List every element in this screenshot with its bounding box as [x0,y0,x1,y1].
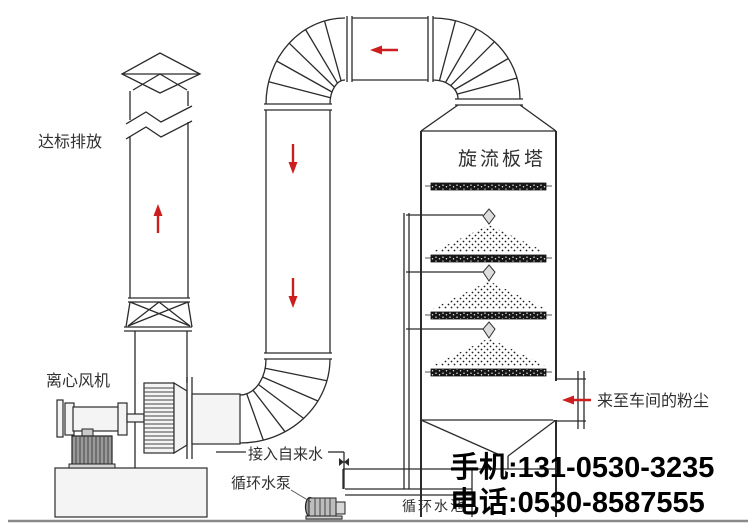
valve-icon [339,458,344,466]
process-flow-diagram: 达标排放 离心风机 旋流板塔 来至车间的粉尘 接入自来水 循环水泵 循环水池 手… [0,0,756,529]
spray-level [406,209,546,252]
spray-level [406,265,546,309]
downcomer-duct [264,104,332,359]
spray-cone [432,225,546,252]
fan-foundation-block [55,468,207,517]
tap-water-label: 接入自来水 [248,446,323,463]
stack-reducer [124,298,192,331]
tray-plate [425,369,552,376]
tray-plate [425,312,552,319]
elbow-bottom-to-fan [240,359,330,443]
valve-icon [344,458,349,466]
spray-nozzle-icon [483,322,495,338]
pump-label: 循环水泵 [231,475,291,492]
flow-arrow-down-icon [289,278,298,308]
chimney-cap [122,53,200,93]
fan-label: 离心风机 [46,372,110,390]
emission-label: 达标排放 [38,133,102,151]
circulating-pump [291,490,345,519]
contact-mobile: 手机:131-0530-3235 [450,451,714,484]
elbow-top-right [433,18,520,99]
tray-plate [425,255,552,262]
flow-arrows [154,46,592,405]
fan-motor [57,400,144,437]
flow-arrow-down-icon [289,144,298,174]
spray-cone [432,281,546,309]
auxiliary-motor [69,429,115,468]
spray-cone [432,338,546,366]
flow-arrow-left-icon [370,46,398,55]
fan-impeller-housing [144,377,240,459]
spray-nozzle-icon [483,209,495,224]
flow-arrow-up-icon [154,204,163,233]
spray-riser-pipe [404,213,409,489]
stack-break-symbol [126,106,192,139]
contact-phone: 电话:0530-8587555 [450,486,705,519]
tower-label: 旋流板塔 [458,148,546,170]
elbow-top-left [266,18,345,104]
tray-plate [425,183,552,190]
fan-assembly [57,377,240,468]
dust-inlet-label: 来至车间的粉尘 [597,392,709,410]
diagram-canvas: 达标排放 离心风机 旋流板塔 来至车间的粉尘 接入自来水 循环水泵 循环水池 手… [0,0,756,529]
spray-nozzle-icon [483,265,495,281]
spray-level [406,322,546,366]
